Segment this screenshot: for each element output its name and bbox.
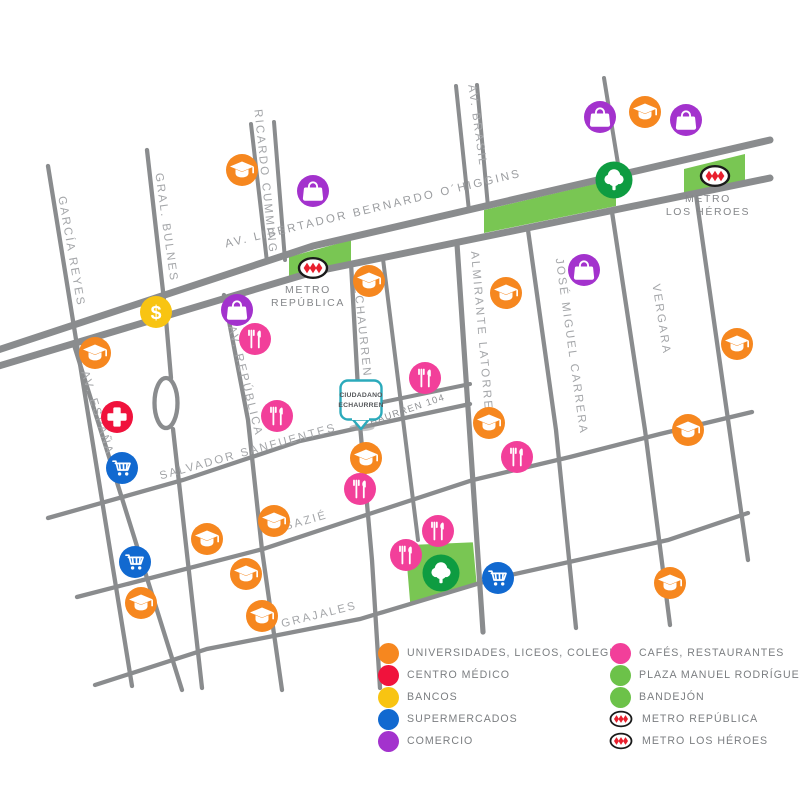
supermarkets-dot-icon [378, 709, 399, 730]
university-marker [79, 337, 111, 369]
legend-item-bancos: BANCOS [378, 686, 598, 708]
legend-column-left: UNIVERSIDADES, LICEOS, COLEGIOS CENTRO M… [378, 642, 598, 752]
university-marker [191, 523, 223, 555]
restaurant-marker [261, 400, 293, 432]
legend-item-centro-medico: CENTRO MÉDICO [378, 664, 598, 686]
legend-label: BANCOS [407, 691, 458, 703]
legend-item-universidades: UNIVERSIDADES, LICEOS, COLEGIOS [378, 642, 598, 664]
university-marker [246, 600, 278, 632]
street-vergara [612, 212, 670, 625]
medical-marker [101, 401, 133, 433]
street-network [0, 78, 770, 690]
legend-item-metro-los-heroes: METRO LOS HÉROES [610, 730, 780, 752]
university-marker [721, 328, 753, 360]
legend-item-cafes: CAFÉS, RESTAURANTES [610, 642, 780, 664]
restaurant-marker [344, 473, 376, 505]
university-marker [258, 505, 290, 537]
metro-marker [299, 258, 327, 278]
university-marker [473, 407, 505, 439]
legend-column-right: CAFÉS, RESTAURANTES PLAZA MANUEL RODRÍGU… [610, 642, 780, 752]
university-marker [226, 154, 258, 186]
restaurants-dot-icon [610, 643, 631, 664]
university-marker [490, 277, 522, 309]
legend-label: CENTRO MÉDICO [407, 669, 510, 681]
commerce-marker [584, 101, 616, 133]
commerce-marker [568, 254, 600, 286]
university-marker [230, 558, 262, 590]
supermarket-marker [106, 452, 138, 484]
legend-label: UNIVERSIDADES, LICEOS, COLEGIOS [407, 647, 631, 659]
street-oval-roundabout [155, 378, 178, 428]
commerce-marker [670, 104, 702, 136]
map-page: $ [0, 0, 800, 800]
bandejon-dot-icon [610, 687, 631, 708]
tree-marker [423, 555, 460, 592]
legend-item-plaza: PLAZA MANUEL RODRÍGUEZ [610, 664, 780, 686]
university-marker [629, 96, 661, 128]
callout-line2: ECHAURREN [338, 402, 383, 409]
universities-dot-icon [378, 643, 399, 664]
restaurant-marker [422, 515, 454, 547]
metro-los-heroes-label-1: METRO [685, 193, 731, 205]
supermarket-marker [482, 562, 514, 594]
supermarket-marker [119, 546, 151, 578]
legend-label: SUPERMERCADOS [407, 713, 518, 725]
legend-label: COMERCIO [407, 735, 473, 747]
university-marker [353, 265, 385, 297]
callout-line1: CIUDADANO [339, 392, 382, 399]
poi-markers [79, 96, 753, 632]
restaurant-marker [239, 323, 271, 355]
medical-dot-icon [378, 665, 399, 686]
legend-label: METRO REPÚBLICA [642, 713, 758, 725]
street-label-av-brasil: AV. BRASIL [465, 84, 488, 168]
banks-dot-icon [378, 687, 399, 708]
metro-marker [701, 166, 729, 186]
legend-item-bandejon: BANDEJÓN [610, 686, 780, 708]
legend-label: PLAZA MANUEL RODRÍGUEZ [639, 669, 800, 681]
commerce-marker [221, 294, 253, 326]
metro-icon [608, 732, 634, 750]
legend-label: CAFÉS, RESTAURANTES [639, 647, 784, 659]
metro-los-heroes-label-2: LOS HÉROES [666, 205, 750, 218]
restaurant-marker [409, 362, 441, 394]
legend-item-comercio: COMERCIO [378, 730, 598, 752]
legend-item-metro-republica: METRO REPÚBLICA [610, 708, 780, 730]
callout-box [341, 381, 382, 420]
metro-icon [608, 710, 634, 728]
restaurant-marker [501, 441, 533, 473]
street-unnamed-east [696, 195, 748, 560]
metro-republica-label-2: REPÚBLICA [271, 296, 345, 309]
metro-republica-label-1: METRO [285, 284, 331, 296]
university-marker [350, 442, 382, 474]
street-label-almirante-latorre: ALMIRANTE LATORRE [468, 251, 494, 411]
plaza-dot-icon [610, 665, 631, 686]
legend-label: METRO LOS HÉROES [642, 735, 768, 747]
university-marker [672, 414, 704, 446]
commerce-dot-icon [378, 731, 399, 752]
legend-label: BANDEJÓN [639, 691, 705, 703]
university-marker [654, 567, 686, 599]
restaurant-marker [390, 539, 422, 571]
commerce-marker [297, 175, 329, 207]
tree-marker [596, 162, 633, 199]
bank-marker [140, 296, 172, 328]
street-label-vergara: VERGARA [649, 283, 672, 356]
avenue-ohiggins-north-lane [0, 140, 770, 352]
university-marker [125, 587, 157, 619]
legend-item-supermercados: SUPERMERCADOS [378, 708, 598, 730]
